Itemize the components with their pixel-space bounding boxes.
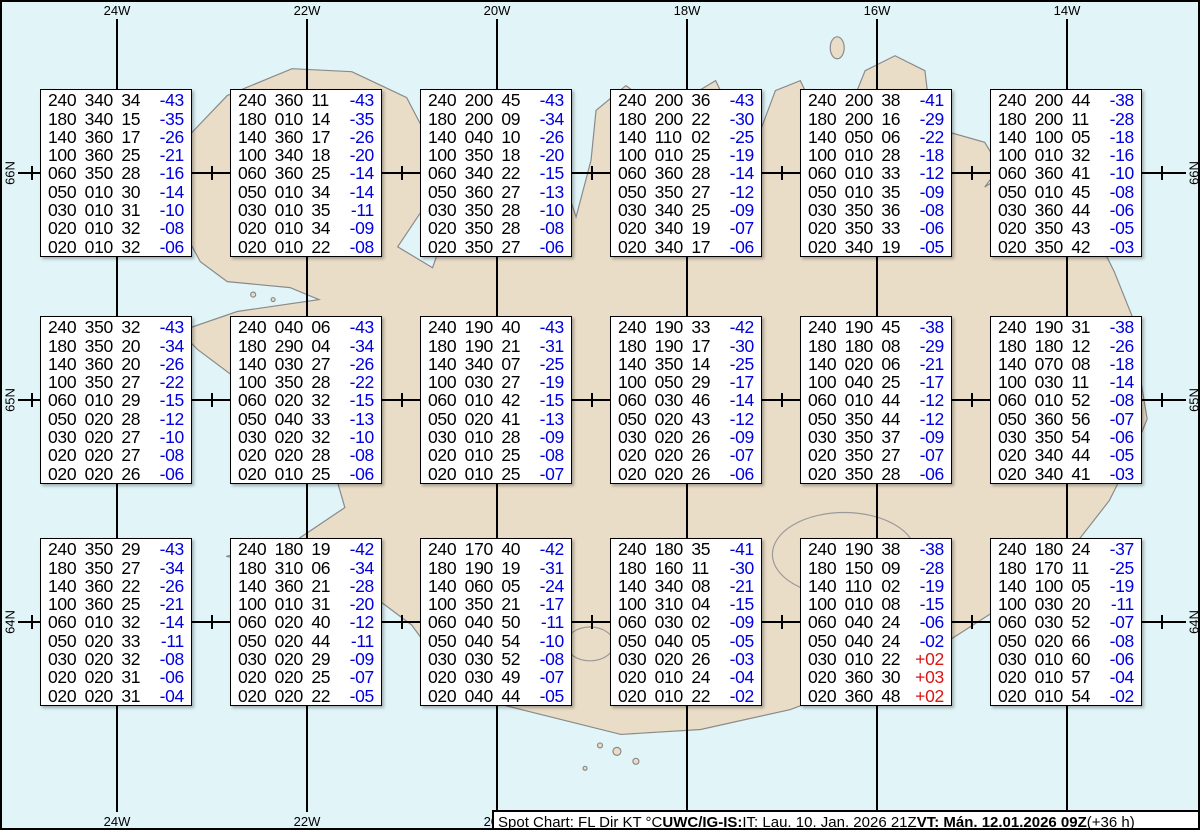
wind-speed-value: 48 — [881, 687, 907, 705]
wind-direction-value: 190 — [465, 559, 499, 577]
wind-direction-value: 020 — [275, 613, 309, 631]
flight-level-value: 140 — [48, 128, 82, 146]
temperature-value: -15 — [910, 595, 944, 613]
temperature-value: -20 — [340, 595, 374, 613]
spot-table-row: 03034025-09 — [618, 201, 754, 219]
wind-direction-value: 010 — [655, 146, 689, 164]
spot-table-row: 05002033-11 — [48, 632, 184, 650]
spot-table-row: 02036030+03 — [808, 668, 944, 686]
wind-direction-value: 350 — [465, 238, 499, 256]
spot-table-row: 14035014-25 — [618, 355, 754, 373]
spot-table-row: 18017011-25 — [998, 559, 1134, 577]
wind-direction-value: 010 — [275, 183, 309, 201]
wind-direction-value: 360 — [1035, 164, 1069, 182]
wind-speed-value: 24 — [881, 613, 907, 631]
wind-direction-value: 010 — [1035, 650, 1069, 668]
wind-direction-value: 010 — [85, 238, 119, 256]
spot-table-row: 18020022-30 — [618, 110, 754, 128]
flight-level-value: 020 — [238, 668, 272, 686]
wind-direction-value: 340 — [85, 91, 119, 109]
spot-table-row: 18035027-34 — [48, 559, 184, 577]
temperature-value: -17 — [910, 373, 944, 391]
temperature-value: -25 — [530, 355, 564, 373]
wind-direction-value: 040 — [845, 632, 879, 650]
wind-speed-value: 11 — [1071, 110, 1097, 128]
wind-direction-value: 060 — [465, 577, 499, 595]
temperature-value: -30 — [720, 110, 754, 128]
wind-speed-value: 09 — [501, 110, 527, 128]
wind-speed-value: 27 — [881, 446, 907, 464]
spot-table-row: 24017040-42 — [428, 540, 564, 558]
wind-direction-value: 010 — [85, 201, 119, 219]
spot-table: 24036011-4318001014-3514036017-261003401… — [230, 89, 382, 257]
flight-level-value: 030 — [48, 650, 82, 668]
wind-speed-value: 18 — [501, 146, 527, 164]
spot-table: 24019033-4218019017-3014035014-251000502… — [610, 316, 762, 484]
status-bar-text: (+36 h) — [1087, 814, 1135, 830]
flight-level-value: 020 — [238, 687, 272, 705]
wind-speed-value: 37 — [881, 428, 907, 446]
wind-direction-value: 020 — [655, 465, 689, 483]
wind-speed-value: 28 — [121, 164, 147, 182]
flight-level-value: 240 — [428, 91, 462, 109]
temperature-value: -26 — [530, 128, 564, 146]
wind-speed-value: 32 — [311, 391, 337, 409]
temperature-value: -11 — [150, 632, 184, 650]
spot-table: 24035032-4318035020-3414036020-261003502… — [40, 316, 192, 484]
temperature-value: -38 — [910, 318, 944, 336]
spot-table-row: 05004005-05 — [618, 632, 754, 650]
wind-direction-value: 350 — [465, 595, 499, 613]
temperature-value: -06 — [910, 613, 944, 631]
wind-speed-value: 28 — [691, 164, 717, 182]
wind-speed-value: 32 — [121, 613, 147, 631]
flight-level-value: 240 — [808, 91, 842, 109]
wind-speed-value: 17 — [691, 238, 717, 256]
flight-level-value: 100 — [48, 595, 82, 613]
status-bar-text: VT: Mán. 12.01.2026 09Z — [917, 814, 1087, 830]
wind-direction-value: 350 — [845, 465, 879, 483]
wind-speed-value: 33 — [881, 219, 907, 237]
wind-direction-value: 110 — [845, 577, 879, 595]
wind-speed-value: 17 — [121, 128, 147, 146]
wind-speed-value: 43 — [691, 410, 717, 428]
wind-direction-value: 040 — [465, 632, 499, 650]
spot-table: 24020044-3818020011-2814010005-181000103… — [990, 89, 1142, 257]
wind-speed-value: 22 — [881, 650, 907, 668]
spot-table-row: 18018012-26 — [998, 337, 1134, 355]
wind-direction-value: 350 — [85, 559, 119, 577]
temperature-value: -17 — [530, 595, 564, 613]
flight-level-value: 060 — [428, 164, 462, 182]
wind-direction-value: 360 — [275, 577, 309, 595]
wind-direction-value: 350 — [655, 355, 689, 373]
flight-level-value: 180 — [998, 559, 1032, 577]
temperature-value: -07 — [910, 446, 944, 464]
wind-speed-value: 41 — [1071, 164, 1097, 182]
spot-table-row: 24004006-43 — [238, 318, 374, 336]
wind-speed-value: 22 — [311, 687, 337, 705]
wind-speed-value: 11 — [691, 559, 717, 577]
wind-speed-value: 26 — [691, 446, 717, 464]
flight-level-value: 020 — [808, 446, 842, 464]
spot-table-row: 05035044-12 — [808, 410, 944, 428]
flight-level-value: 100 — [998, 373, 1032, 391]
flight-level-value: 180 — [48, 559, 82, 577]
flight-level-value: 180 — [238, 337, 272, 355]
wind-direction-value: 200 — [845, 110, 879, 128]
temperature-value: -42 — [530, 540, 564, 558]
wind-speed-value: 17 — [311, 128, 337, 146]
wind-speed-value: 32 — [121, 650, 147, 668]
temperature-value: -05 — [910, 238, 944, 256]
wind-speed-value: 27 — [121, 373, 147, 391]
flight-level-value: 180 — [618, 559, 652, 577]
flight-level-value: 020 — [238, 219, 272, 237]
flight-level-value: 240 — [48, 540, 82, 558]
wind-direction-value: 010 — [275, 219, 309, 237]
wind-direction-value: 010 — [655, 687, 689, 705]
spot-table-row: 05002043-12 — [618, 410, 754, 428]
spot-table-row: 02002026-07 — [618, 446, 754, 464]
flight-level-value: 240 — [998, 540, 1032, 558]
wind-speed-value: 25 — [311, 668, 337, 686]
temperature-value: -16 — [150, 164, 184, 182]
temperature-value: -03 — [1100, 465, 1134, 483]
flight-level-value: 020 — [618, 465, 652, 483]
temperature-value: -16 — [1100, 146, 1134, 164]
flight-level-value: 030 — [238, 428, 272, 446]
temperature-value: -02 — [720, 687, 754, 705]
wind-direction-value: 010 — [465, 391, 499, 409]
flight-level-value: 180 — [808, 337, 842, 355]
flight-level-value: 140 — [808, 355, 842, 373]
spot-table-row: 03035036-08 — [808, 201, 944, 219]
temperature-value: -06 — [150, 465, 184, 483]
temperature-value: -05 — [530, 687, 564, 705]
temperature-value: -08 — [150, 446, 184, 464]
temperature-value: -08 — [530, 446, 564, 464]
wind-direction-value: 360 — [845, 668, 879, 686]
wind-speed-value: 25 — [121, 146, 147, 164]
temperature-value: -25 — [1100, 559, 1134, 577]
spot-table-row: 18034015-35 — [48, 110, 184, 128]
flight-level-value: 050 — [48, 410, 82, 428]
wind-direction-value: 350 — [85, 164, 119, 182]
wind-direction-value: 010 — [845, 391, 879, 409]
wind-speed-value: 25 — [691, 146, 717, 164]
wind-speed-value: 26 — [121, 465, 147, 483]
flight-level-value: 020 — [48, 668, 82, 686]
spot-table-row: 24020038-41 — [808, 91, 944, 109]
wind-speed-value: 10 — [501, 128, 527, 146]
wind-speed-value: 08 — [881, 595, 907, 613]
flight-level-value: 030 — [618, 650, 652, 668]
temperature-value: -34 — [150, 337, 184, 355]
wind-direction-value: 030 — [655, 391, 689, 409]
temperature-value: -25 — [720, 355, 754, 373]
spot-table-row: 03002026-03 — [618, 650, 754, 668]
flight-level-value: 050 — [48, 632, 82, 650]
wind-speed-value: 04 — [311, 337, 337, 355]
temperature-value: -05 — [340, 687, 374, 705]
flight-level-value: 100 — [808, 373, 842, 391]
wind-speed-value: 05 — [1071, 577, 1097, 595]
spot-table: 24020038-4118020016-2914005006-221000102… — [800, 89, 952, 257]
flight-level-value: 020 — [998, 465, 1032, 483]
wind-speed-value: 40 — [311, 613, 337, 631]
temperature-value: -26 — [150, 577, 184, 595]
spot-table-row: 18015009-28 — [808, 559, 944, 577]
spot-table-row: 02036048+02 — [808, 687, 944, 705]
temperature-value: -09 — [910, 428, 944, 446]
wind-speed-value: 05 — [501, 577, 527, 595]
wind-speed-value: 45 — [1071, 183, 1097, 201]
wind-speed-value: 28 — [881, 146, 907, 164]
temperature-value: -06 — [1100, 650, 1134, 668]
temperature-value: -08 — [910, 201, 944, 219]
temperature-value: -15 — [340, 391, 374, 409]
spot-table-row: 03001028-09 — [428, 428, 564, 446]
spot-table-row: 03003052-08 — [428, 650, 564, 668]
wind-direction-value: 200 — [465, 91, 499, 109]
temperature-value: -08 — [150, 650, 184, 668]
spot-table-row: 14034008-21 — [618, 577, 754, 595]
temperature-value: -10 — [150, 428, 184, 446]
spot-table-row: 24019038-38 — [808, 540, 944, 558]
spot-table-row: 02034017-06 — [618, 238, 754, 256]
spot-table-row: 24034034-43 — [48, 91, 184, 109]
wind-speed-value: 40 — [501, 318, 527, 336]
wind-speed-value: 29 — [121, 540, 147, 558]
temperature-value: -41 — [910, 91, 944, 109]
spot-table-row: 06001029-15 — [48, 391, 184, 409]
wind-direction-value: 040 — [655, 632, 689, 650]
wind-direction-value: 190 — [845, 318, 879, 336]
flight-level-value: 020 — [998, 687, 1032, 705]
wind-direction-value: 030 — [1035, 373, 1069, 391]
spot-table-row: 02001054-02 — [998, 687, 1134, 705]
spot-table-row: 03002029-09 — [238, 650, 374, 668]
spot-table-row: 18020009-34 — [428, 110, 564, 128]
wind-speed-value: 45 — [501, 91, 527, 109]
flight-level-value: 100 — [618, 146, 652, 164]
spot-tables-layer: 24034034-4318034015-3514036017-261003602… — [2, 2, 1198, 828]
wind-speed-value: 36 — [691, 91, 717, 109]
temperature-value: -22 — [340, 373, 374, 391]
spot-table-row: 14010005-19 — [998, 577, 1134, 595]
wind-speed-value: 06 — [881, 128, 907, 146]
flight-level-value: 060 — [48, 613, 82, 631]
spot-table-row: 18019019-31 — [428, 559, 564, 577]
flight-level-value: 240 — [48, 318, 82, 336]
spot-table-row: 14034007-25 — [428, 355, 564, 373]
wind-speed-value: 56 — [1071, 410, 1097, 428]
wind-speed-value: 20 — [1071, 595, 1097, 613]
wind-direction-value: 020 — [275, 687, 309, 705]
wind-direction-value: 010 — [85, 219, 119, 237]
wind-direction-value: 170 — [1035, 559, 1069, 577]
wind-direction-value: 200 — [465, 110, 499, 128]
temperature-value: -08 — [1100, 391, 1134, 409]
temperature-value: -02 — [910, 632, 944, 650]
temperature-value: -13 — [340, 410, 374, 428]
temperature-value: -38 — [910, 540, 944, 558]
wind-speed-value: 17 — [691, 337, 717, 355]
wind-direction-value: 200 — [655, 91, 689, 109]
temperature-value: -10 — [530, 201, 564, 219]
wind-speed-value: 02 — [691, 613, 717, 631]
spot-table: 24019038-3818015009-2814011002-191000100… — [800, 538, 952, 706]
wind-direction-value: 360 — [1035, 201, 1069, 219]
spot-table-row: 03036044-06 — [998, 201, 1134, 219]
temperature-value: -07 — [1100, 613, 1134, 631]
wind-direction-value: 030 — [655, 613, 689, 631]
wind-speed-value: 44 — [881, 410, 907, 428]
wind-direction-value: 010 — [275, 110, 309, 128]
wind-direction-value: 180 — [1035, 540, 1069, 558]
flight-level-value: 180 — [238, 110, 272, 128]
temperature-value: -18 — [1100, 128, 1134, 146]
temperature-value: -19 — [910, 577, 944, 595]
flight-level-value: 180 — [238, 559, 272, 577]
wind-direction-value: 200 — [1035, 91, 1069, 109]
spot-table-row: 05004033-13 — [238, 410, 374, 428]
wind-speed-value: 32 — [121, 318, 147, 336]
wind-direction-value: 360 — [1035, 410, 1069, 428]
wind-speed-value: 32 — [1071, 146, 1097, 164]
spot-table-row: 03002026-09 — [618, 428, 754, 446]
wind-direction-value: 190 — [1035, 318, 1069, 336]
flight-level-value: 030 — [808, 650, 842, 668]
flight-level-value: 100 — [428, 373, 462, 391]
wind-speed-value: 22 — [311, 238, 337, 256]
spot-table-row: 06034022-15 — [428, 164, 564, 182]
spot-table-row: 02002027-08 — [48, 446, 184, 464]
spot-table-row: 24020044-38 — [998, 91, 1134, 109]
wind-speed-value: 34 — [311, 183, 337, 201]
temperature-value: +02 — [910, 687, 944, 705]
wind-direction-value: 350 — [1035, 428, 1069, 446]
spot-table-row: 02001025-08 — [428, 446, 564, 464]
flight-level-value: 100 — [808, 146, 842, 164]
flight-level-value: 020 — [238, 446, 272, 464]
wind-direction-value: 340 — [1035, 465, 1069, 483]
spot-table-row: 10001028-18 — [808, 146, 944, 164]
temperature-value: -12 — [720, 183, 754, 201]
wind-speed-value: 45 — [881, 318, 907, 336]
temperature-value: -43 — [530, 318, 564, 336]
flight-level-value: 020 — [428, 687, 462, 705]
wind-speed-value: 11 — [1071, 373, 1097, 391]
wind-speed-value: 19 — [881, 238, 907, 256]
wind-speed-value: 30 — [881, 668, 907, 686]
wind-speed-value: 33 — [121, 632, 147, 650]
flight-level-value: 020 — [618, 668, 652, 686]
wind-direction-value: 180 — [845, 337, 879, 355]
wind-speed-value: 31 — [1071, 318, 1097, 336]
wind-speed-value: 27 — [121, 446, 147, 464]
wind-speed-value: 38 — [881, 91, 907, 109]
flight-level-value: 020 — [428, 446, 462, 464]
wind-direction-value: 020 — [275, 668, 309, 686]
wind-speed-value: 22 — [691, 687, 717, 705]
flight-level-value: 100 — [428, 146, 462, 164]
wind-speed-value: 31 — [121, 201, 147, 219]
spot-table: 24004006-4318029004-3414003027-261003502… — [230, 316, 382, 484]
wind-speed-value: 41 — [1071, 465, 1097, 483]
spot-table-row: 03002032-08 — [48, 650, 184, 668]
wind-direction-value: 350 — [275, 373, 309, 391]
flight-level-value: 020 — [998, 219, 1032, 237]
spot-table-row: 05001035-09 — [808, 183, 944, 201]
temperature-value: -31 — [530, 559, 564, 577]
flight-level-value: 180 — [428, 559, 462, 577]
temperature-value: -31 — [530, 337, 564, 355]
wind-direction-value: 350 — [1035, 238, 1069, 256]
wind-direction-value: 350 — [845, 410, 879, 428]
spot-table: 24018019-4218031006-3414036021-281000103… — [230, 538, 382, 706]
spot-chart-canvas: 24W24W22W22W20W20W18W18W16W16W14W14W66N6… — [0, 0, 1200, 830]
temperature-value: -24 — [530, 577, 564, 595]
spot-table-row: 10003027-19 — [428, 373, 564, 391]
wind-direction-value: 360 — [275, 164, 309, 182]
wind-direction-value: 340 — [655, 238, 689, 256]
wind-speed-value: 20 — [121, 355, 147, 373]
spot-table-row: 10001008-15 — [808, 595, 944, 613]
spot-table-row: 02004044-05 — [428, 687, 564, 705]
spot-table-row: 06002032-15 — [238, 391, 374, 409]
spot-table-row: 02002026-06 — [48, 465, 184, 483]
flight-level-value: 020 — [808, 668, 842, 686]
flight-level-value: 020 — [618, 238, 652, 256]
temperature-value: -26 — [340, 355, 374, 373]
flight-level-value: 050 — [618, 183, 652, 201]
flight-level-value: 060 — [808, 613, 842, 631]
temperature-value: -42 — [340, 540, 374, 558]
wind-direction-value: 010 — [1035, 668, 1069, 686]
wind-speed-value: 19 — [691, 219, 717, 237]
temperature-value: -08 — [340, 238, 374, 256]
temperature-value: -09 — [720, 428, 754, 446]
temperature-value: -04 — [150, 687, 184, 705]
flight-level-value: 100 — [618, 373, 652, 391]
wind-direction-value: 340 — [655, 577, 689, 595]
wind-direction-value: 160 — [655, 559, 689, 577]
wind-direction-value: 110 — [655, 128, 689, 146]
wind-direction-value: 100 — [1035, 128, 1069, 146]
spot-table-row: 02002022-05 — [238, 687, 374, 705]
flight-level-value: 020 — [808, 219, 842, 237]
flight-level-value: 060 — [618, 613, 652, 631]
wind-direction-value: 150 — [845, 559, 879, 577]
flight-level-value: 060 — [998, 164, 1032, 182]
spot-table-row: 02001025-07 — [428, 465, 564, 483]
wind-speed-value: 28 — [501, 428, 527, 446]
wind-direction-value: 010 — [275, 595, 309, 613]
temperature-value: -10 — [340, 428, 374, 446]
spot-table-row: 18020011-28 — [998, 110, 1134, 128]
flight-level-value: 060 — [48, 164, 82, 182]
wind-direction-value: 310 — [275, 559, 309, 577]
spot-table-row: 06004050-11 — [428, 613, 564, 631]
wind-direction-value: 100 — [1035, 577, 1069, 595]
spot-table-row: 24018024-37 — [998, 540, 1134, 558]
wind-direction-value: 190 — [465, 318, 499, 336]
wind-speed-value: 32 — [311, 428, 337, 446]
wind-direction-value: 190 — [845, 540, 879, 558]
wind-speed-value: 29 — [691, 373, 717, 391]
